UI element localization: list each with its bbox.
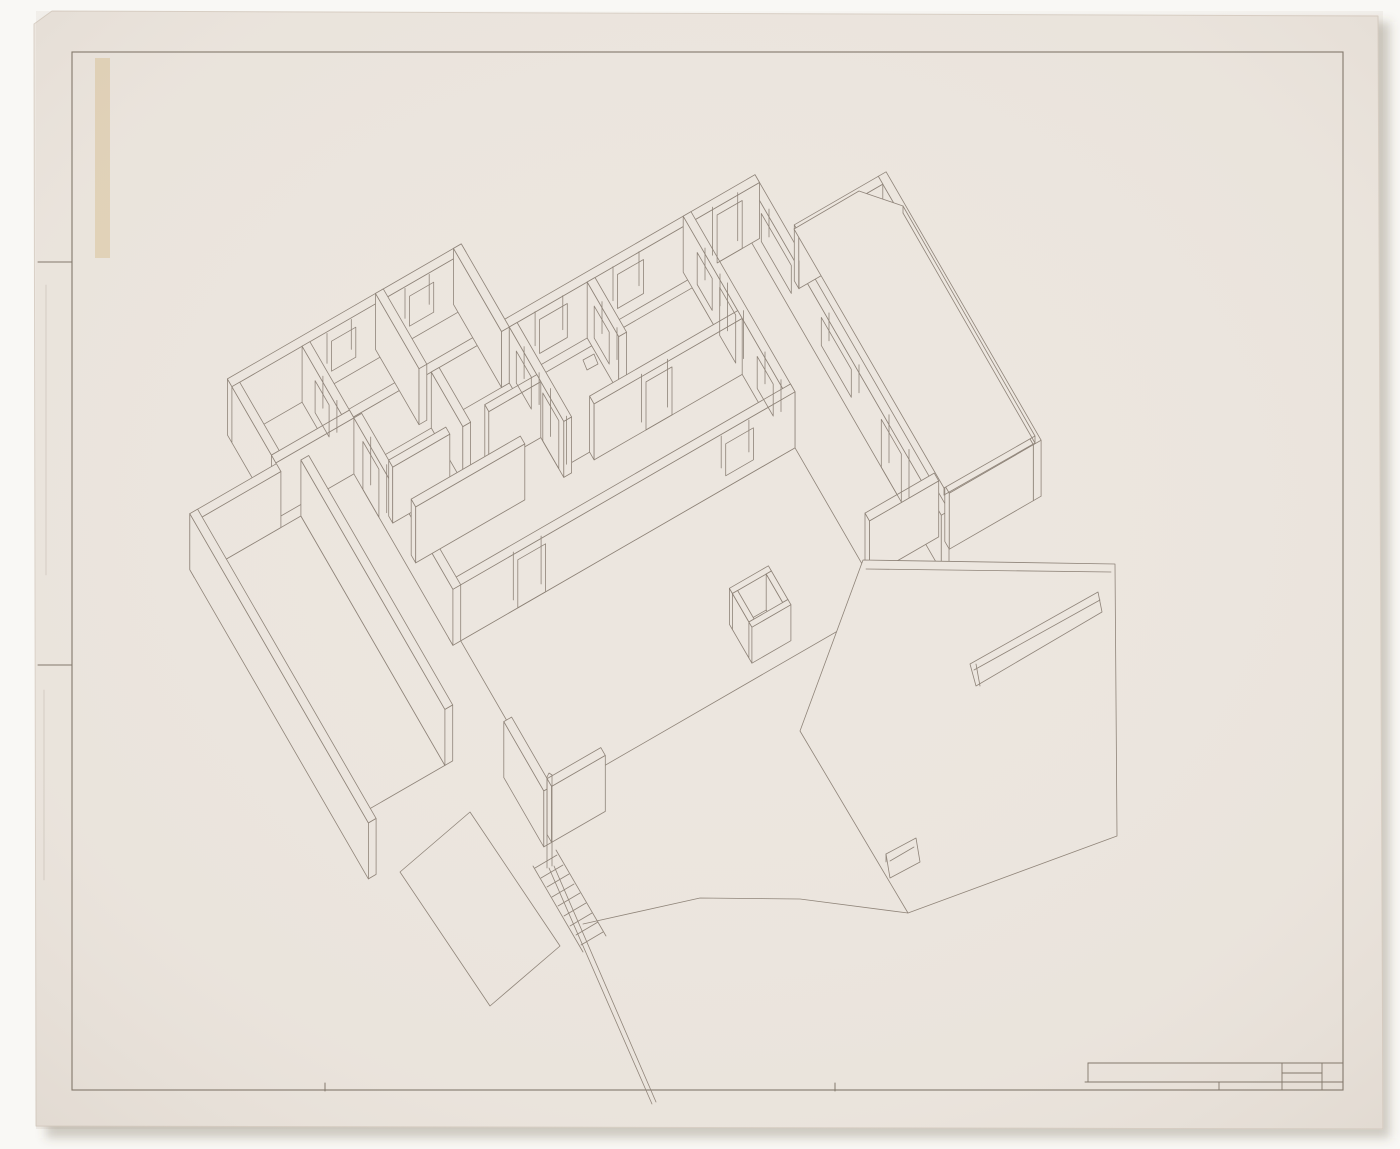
- architectural-axonometric-scan: [0, 0, 1400, 1149]
- scanned-drawing-sheet: [0, 0, 1400, 1149]
